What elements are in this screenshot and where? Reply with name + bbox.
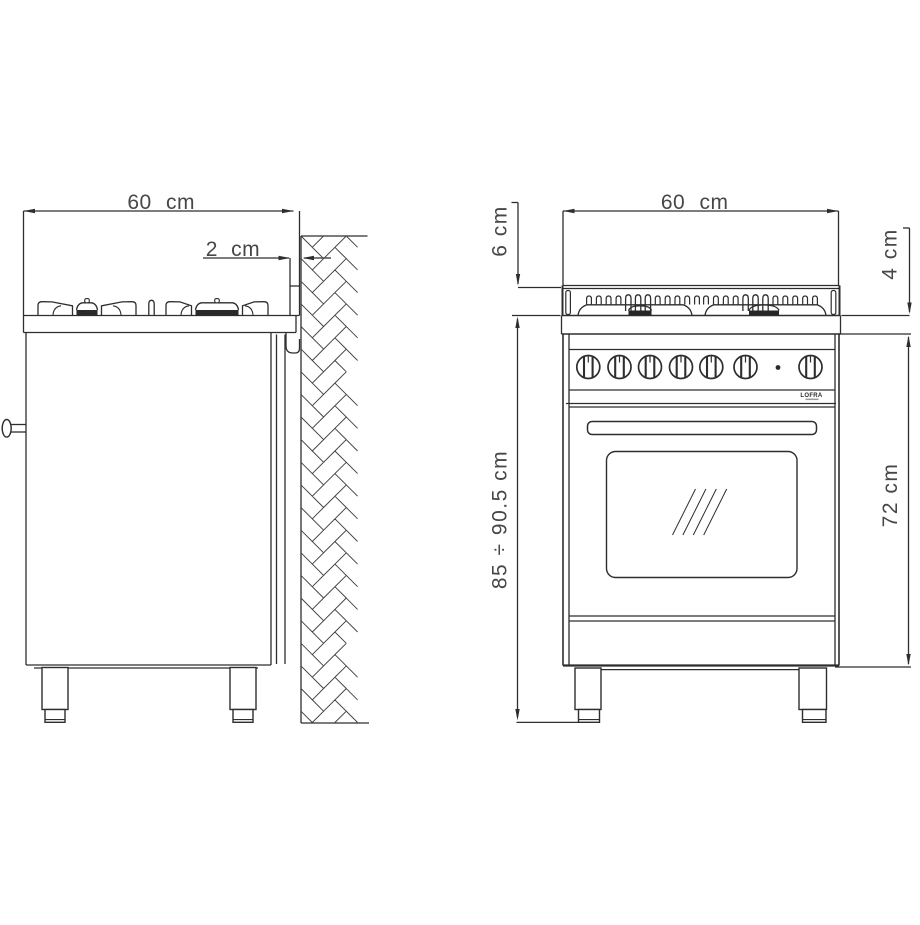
svg-text:60: 60	[127, 191, 151, 214]
svg-text:60: 60	[661, 191, 685, 214]
svg-text:cm: cm	[166, 191, 195, 214]
svg-text:LOFRA: LOFRA	[800, 393, 823, 399]
svg-text:cm: cm	[231, 238, 260, 261]
svg-text:6 cm: 6 cm	[489, 205, 512, 257]
svg-text:72 cm: 72 cm	[879, 463, 902, 528]
svg-text:85 ÷ 90.5 cm: 85 ÷ 90.5 cm	[489, 450, 512, 589]
svg-text:2: 2	[206, 238, 218, 261]
svg-text:cm: cm	[700, 191, 729, 214]
svg-text:4 cm: 4 cm	[879, 228, 902, 280]
